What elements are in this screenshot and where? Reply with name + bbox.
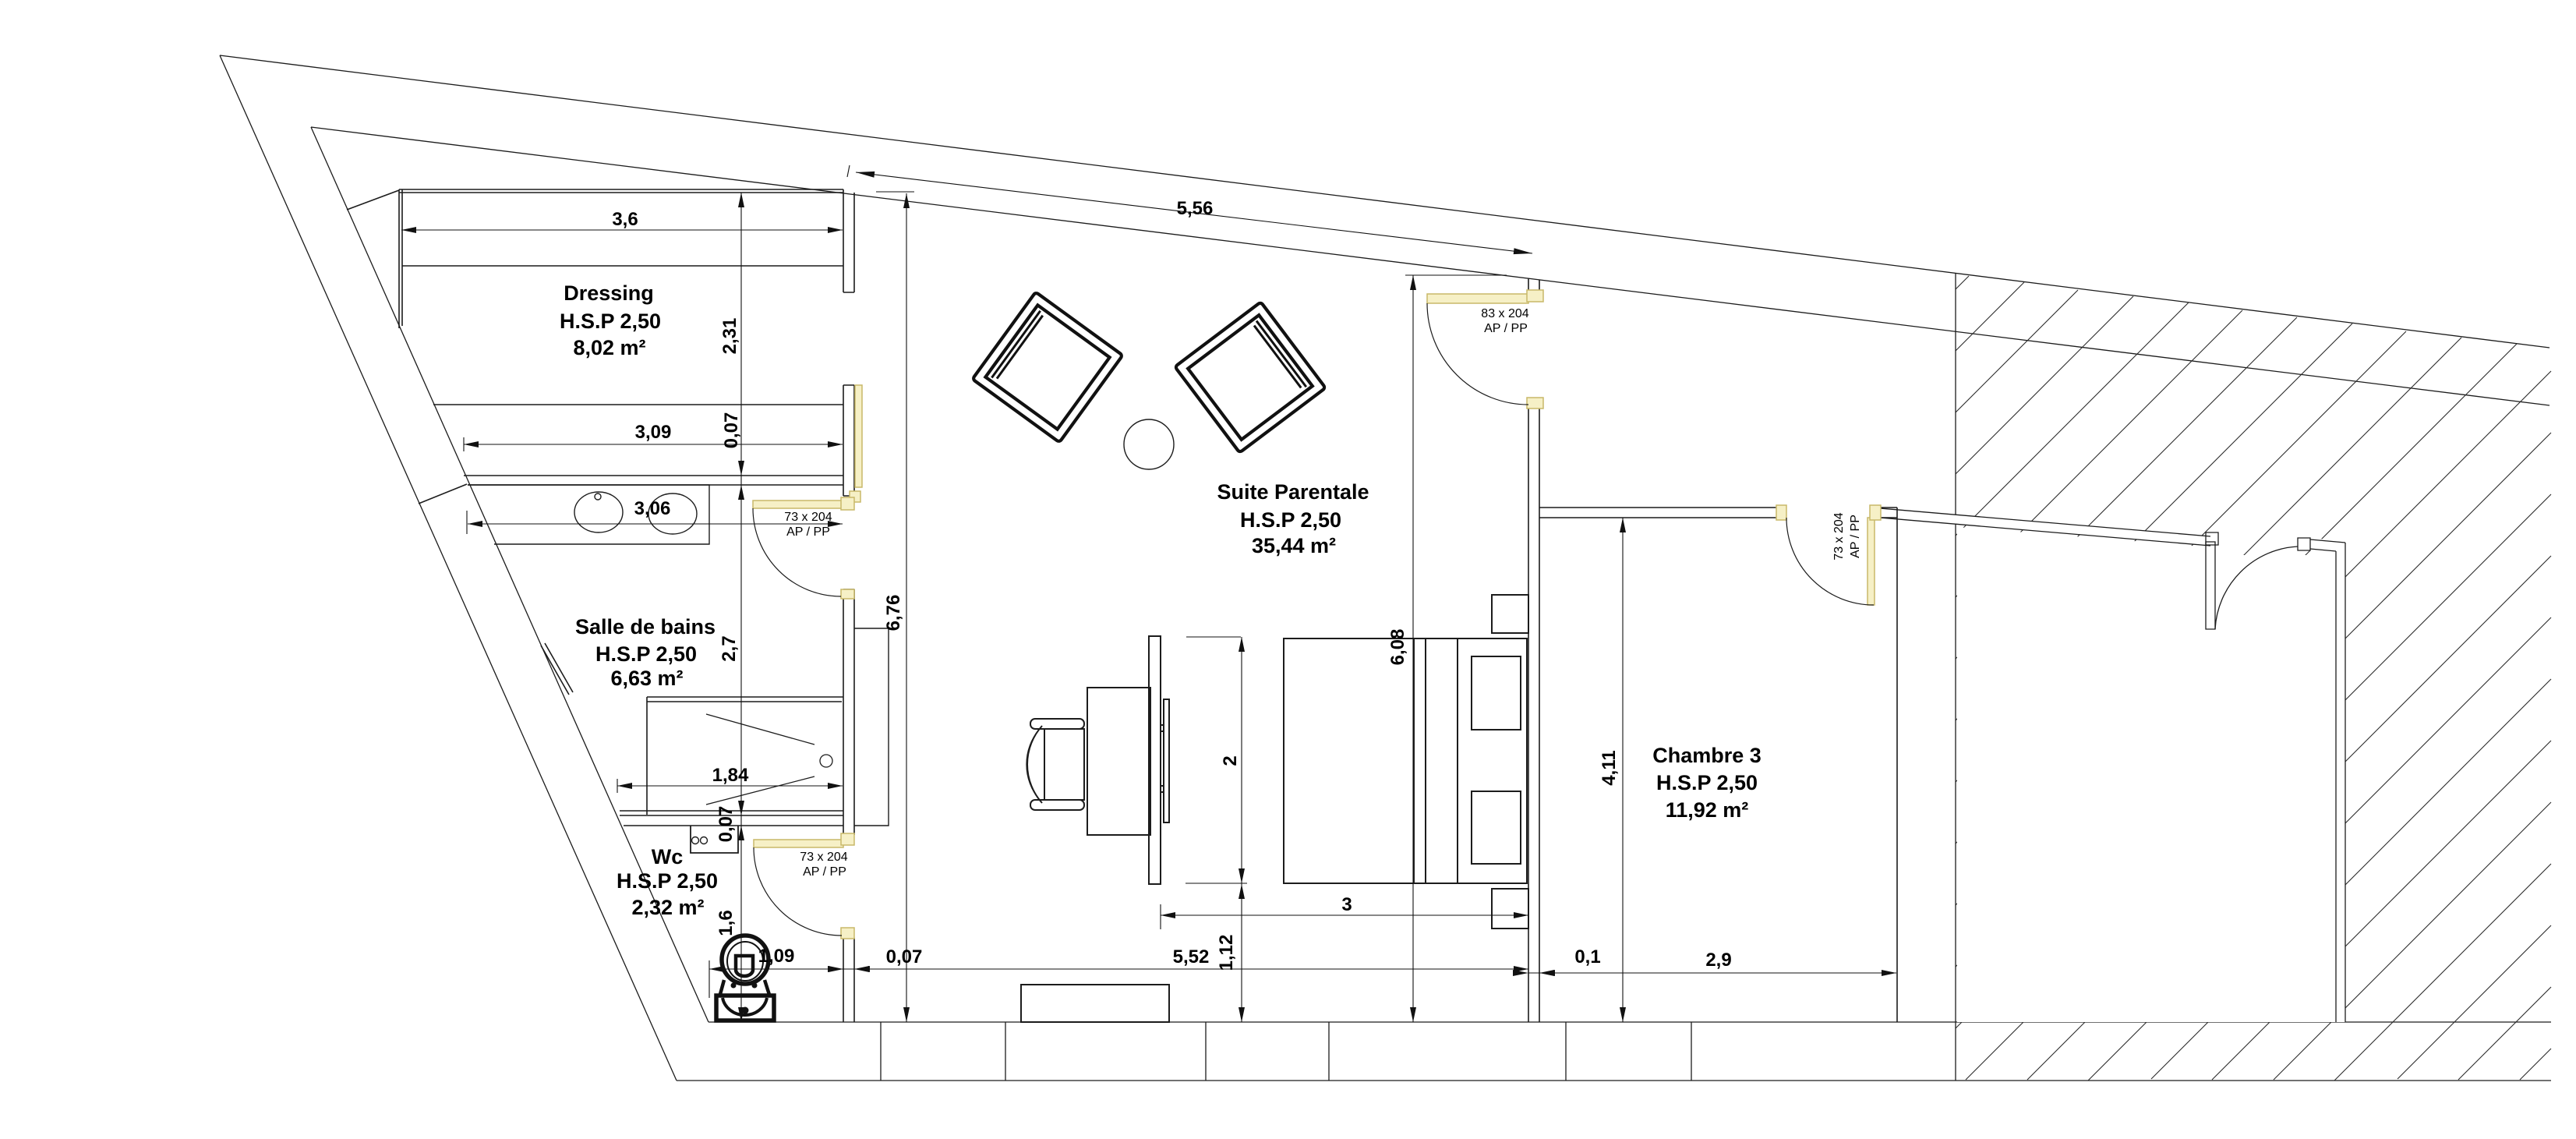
svg-text:8,02 m²: 8,02 m² — [573, 336, 645, 359]
svg-text:Dressing: Dressing — [564, 281, 654, 305]
svg-text:AP / PP: AP / PP — [1484, 322, 1528, 335]
svg-text:Suite Parentale: Suite Parentale — [1217, 480, 1369, 504]
svg-text:35,44 m²: 35,44 m² — [1252, 534, 1336, 557]
svg-text:Wc: Wc — [652, 845, 684, 868]
svg-text:H.S.P 2,50: H.S.P 2,50 — [1656, 771, 1758, 794]
svg-text:2,32 m²: 2,32 m² — [631, 896, 704, 919]
svg-text:3: 3 — [1341, 894, 1352, 915]
svg-text:73 x 204: 73 x 204 — [800, 851, 847, 864]
svg-text:H.S.P 2,50: H.S.P 2,50 — [560, 310, 661, 333]
svg-text:83 x 204: 83 x 204 — [1481, 307, 1528, 320]
svg-text:3,09: 3,09 — [635, 422, 672, 443]
svg-text:11,92 m²: 11,92 m² — [1666, 798, 1749, 822]
svg-text:5,56: 5,56 — [1177, 198, 1214, 219]
svg-text:0,1: 0,1 — [1574, 946, 1600, 967]
svg-text:73 x 204: 73 x 204 — [784, 511, 832, 524]
svg-text:AP / PP: AP / PP — [1849, 515, 1862, 558]
svg-text:1,84: 1,84 — [712, 765, 749, 786]
svg-text:1,09: 1,09 — [758, 946, 795, 967]
svg-text:AP / PP: AP / PP — [786, 525, 830, 539]
svg-text:6,76: 6,76 — [883, 595, 904, 631]
svg-text:Salle de bains: Salle de bains — [575, 615, 716, 638]
svg-text:0,07: 0,07 — [721, 412, 742, 449]
svg-text:6,63 m²: 6,63 m² — [610, 667, 683, 690]
svg-text:AP / PP: AP / PP — [803, 865, 846, 879]
svg-text:2,9: 2,9 — [1705, 950, 1731, 971]
svg-text:2,7: 2,7 — [719, 635, 740, 661]
svg-text:4,11: 4,11 — [1599, 750, 1620, 785]
svg-text:5,52: 5,52 — [1173, 946, 1210, 967]
svg-text:2: 2 — [1220, 755, 1241, 766]
svg-text:3,6: 3,6 — [612, 209, 638, 230]
svg-text:H.S.P 2,50: H.S.P 2,50 — [1240, 508, 1341, 532]
svg-text:1,6: 1,6 — [716, 910, 737, 936]
svg-text:1,12: 1,12 — [1216, 935, 1237, 971]
svg-text:0,07: 0,07 — [716, 806, 737, 843]
svg-text:H.S.P 2,50: H.S.P 2,50 — [617, 869, 718, 893]
svg-text:6,08: 6,08 — [1387, 629, 1408, 666]
svg-text:3,06: 3,06 — [634, 498, 671, 519]
svg-text:0,07: 0,07 — [886, 946, 923, 967]
svg-text:Chambre 3: Chambre 3 — [1652, 744, 1762, 767]
svg-text:73 x 204: 73 x 204 — [1832, 512, 1846, 560]
svg-text:H.S.P 2,50: H.S.P 2,50 — [595, 642, 697, 666]
svg-text:2,31: 2,31 — [719, 318, 740, 355]
